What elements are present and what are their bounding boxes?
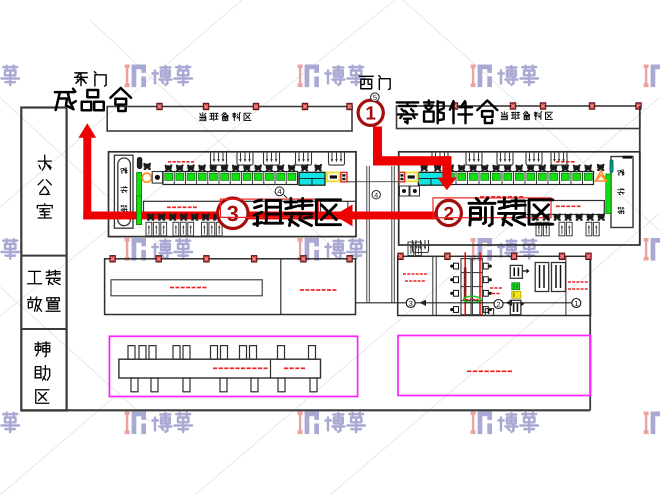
svg-text:1: 1 <box>365 104 376 125</box>
svg-text:2: 2 <box>444 204 455 225</box>
svg-text:2: 2 <box>496 300 500 309</box>
svg-text:1: 1 <box>574 299 578 308</box>
svg-text:3: 3 <box>409 299 413 308</box>
svg-text:4: 4 <box>277 187 281 196</box>
svg-text:3: 3 <box>227 201 239 226</box>
svg-text:5: 5 <box>373 93 377 102</box>
svg-text:4: 4 <box>374 193 378 200</box>
